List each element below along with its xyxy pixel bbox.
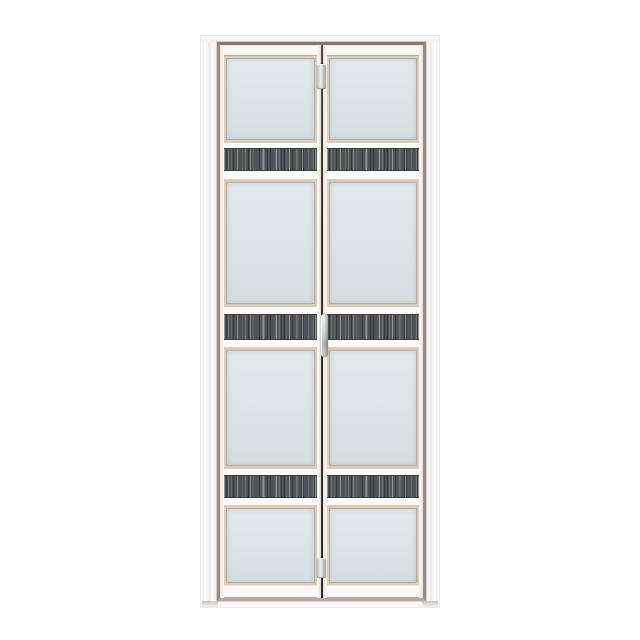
- panel-rail: [327, 45, 420, 56]
- product-photo: [0, 0, 640, 640]
- flush-pull-handle: [321, 314, 328, 357]
- frosted-glass-pane: [224, 506, 317, 585]
- bottom-pivot-hinge: [317, 558, 326, 578]
- frosted-glass-pane: [327, 506, 420, 585]
- left-jamb-shadow: [202, 601, 218, 607]
- band-rail: [327, 340, 420, 347]
- frosted-glass-pane: [327, 56, 420, 142]
- woodgrain-strip: [327, 148, 420, 171]
- band-rail: [224, 171, 317, 179]
- band-rail: [224, 307, 317, 314]
- right-jamb-shadow: [422, 601, 438, 607]
- door-leaf-left: [220, 45, 321, 598]
- band-rail: [224, 340, 317, 347]
- frosted-glass-pane: [327, 180, 420, 306]
- door-panels: [220, 45, 423, 598]
- frosted-glass-pane: [224, 56, 317, 142]
- woodgrain-strip: [224, 148, 317, 171]
- band-rail: [327, 171, 420, 179]
- frosted-glass-pane: [224, 348, 317, 468]
- panel-rail: [224, 45, 317, 56]
- accent-band: [327, 142, 420, 180]
- accent-band: [224, 306, 317, 348]
- panel-rail: [327, 585, 420, 598]
- woodgrain-strip: [224, 314, 317, 340]
- door-leaf-right: [323, 45, 424, 598]
- woodgrain-strip: [327, 475, 420, 498]
- accent-band: [224, 468, 317, 506]
- woodgrain-strip: [224, 475, 317, 498]
- woodgrain-strip: [327, 314, 420, 340]
- door-frame-reveal: [217, 42, 426, 601]
- band-rail: [224, 498, 317, 505]
- door-frame-left-jamb: [201, 36, 218, 607]
- frosted-glass-pane: [327, 348, 420, 468]
- accent-band: [327, 306, 420, 348]
- accent-band: [224, 142, 317, 180]
- frosted-glass-pane: [224, 180, 317, 306]
- panel-rail: [224, 585, 317, 598]
- band-rail: [327, 498, 420, 505]
- accent-band: [327, 468, 420, 506]
- top-pivot-hinge: [317, 64, 326, 89]
- bifold-door: [200, 35, 440, 608]
- band-rail: [327, 307, 420, 314]
